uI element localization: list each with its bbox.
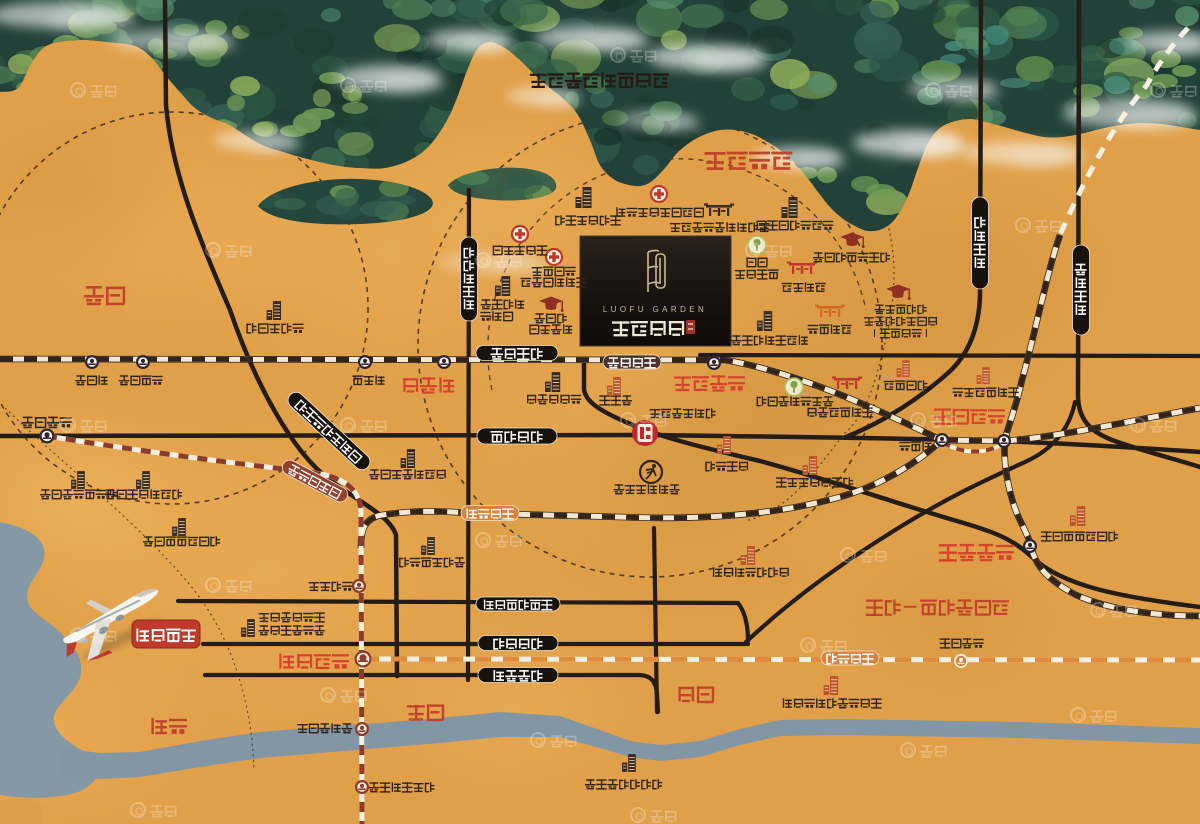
- svg-text:Q: Q: [1075, 711, 1084, 723]
- svg-text:Q: Q: [845, 551, 854, 563]
- svg-text:Q: Q: [635, 811, 644, 823]
- svg-text:Q: Q: [1095, 606, 1104, 618]
- svg-text:Q: Q: [325, 691, 334, 703]
- svg-text:Q: Q: [805, 641, 814, 653]
- svg-text:Q: Q: [625, 416, 634, 428]
- svg-text:Q: Q: [615, 51, 624, 63]
- svg-text:Q: Q: [75, 86, 84, 98]
- svg-text:Q: Q: [480, 256, 489, 268]
- svg-text:Q: Q: [905, 746, 914, 758]
- svg-text:Q: Q: [135, 806, 144, 818]
- svg-text:Q: Q: [1135, 421, 1144, 433]
- svg-text:Q: Q: [915, 416, 924, 428]
- svg-text:Q: Q: [345, 421, 354, 433]
- svg-text:Q: Q: [480, 536, 489, 548]
- svg-text:Q: Q: [65, 421, 74, 433]
- svg-text:Q: Q: [345, 81, 354, 93]
- svg-text:LUOFU GARDEN: LUOFU GARDEN: [603, 305, 707, 314]
- svg-text:Q: Q: [210, 581, 219, 593]
- svg-text:Q: Q: [75, 631, 84, 643]
- svg-text:Q: Q: [535, 736, 544, 748]
- svg-text:Q: Q: [930, 86, 939, 98]
- svg-text:Q: Q: [1155, 86, 1164, 98]
- svg-text:Q: Q: [1020, 221, 1029, 233]
- svg-text:Q: Q: [210, 246, 219, 258]
- svg-text:Q: Q: [750, 246, 759, 258]
